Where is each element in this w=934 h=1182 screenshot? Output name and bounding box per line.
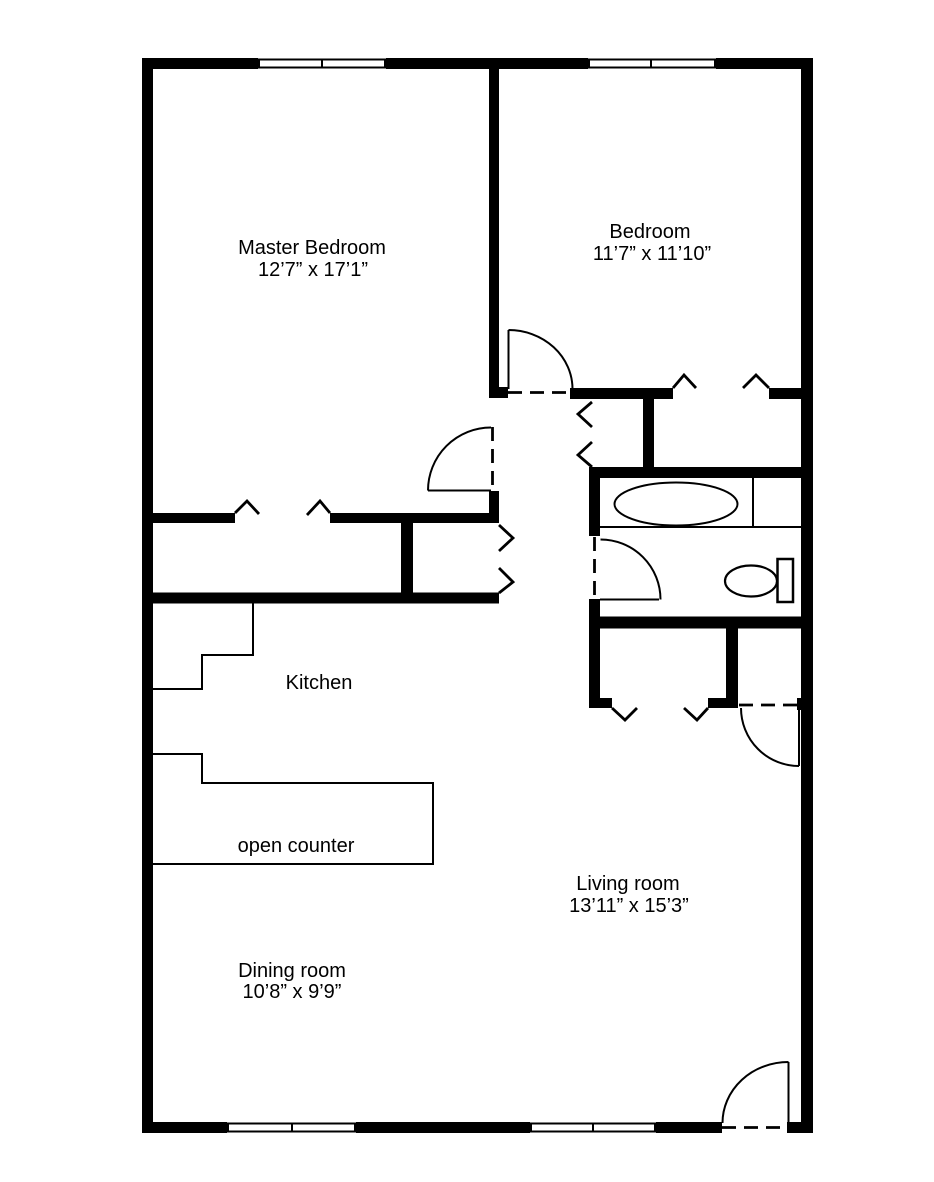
svg-text:11’7” x 11’10”: 11’7” x 11’10”	[593, 243, 711, 265]
svg-text:Kitchen: Kitchen	[286, 672, 353, 694]
svg-text:13’11” x 15’3”: 13’11” x 15’3”	[569, 895, 689, 917]
svg-text:10’8” x 9’9”: 10’8” x 9’9”	[243, 981, 342, 1003]
svg-text:12’7” x 17’1”: 12’7” x 17’1”	[258, 259, 368, 281]
svg-text:Master Bedroom: Master Bedroom	[238, 237, 386, 259]
svg-text:Living room: Living room	[576, 873, 679, 895]
svg-text:Bedroom: Bedroom	[609, 221, 690, 243]
svg-text:open counter: open counter	[238, 835, 355, 857]
svg-text:Dining room: Dining room	[238, 960, 346, 982]
